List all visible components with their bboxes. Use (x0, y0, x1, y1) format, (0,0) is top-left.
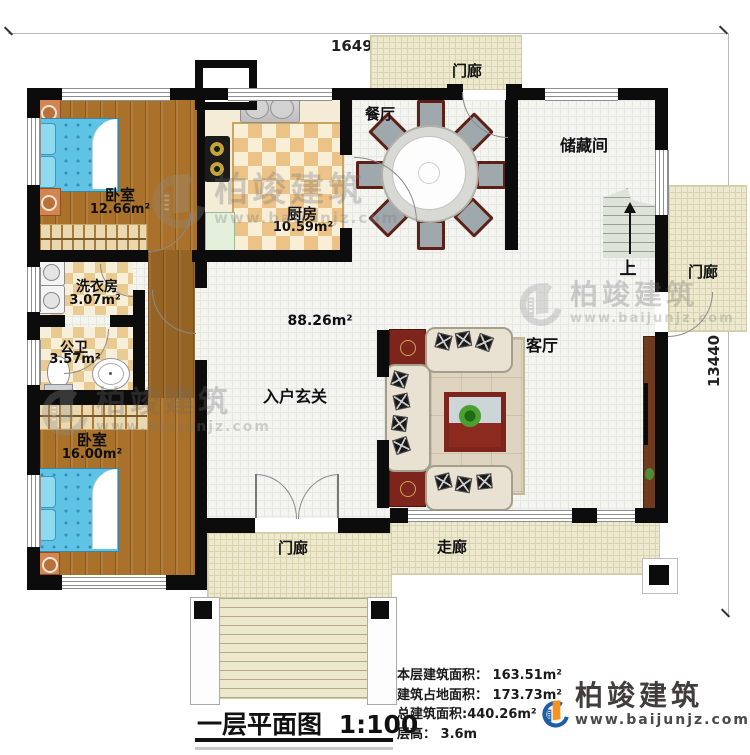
stairs-arrow-head (624, 202, 636, 213)
stairs-up-label: 上 (610, 254, 646, 279)
watermark-brand-text: 柏竣建筑 (570, 280, 735, 311)
wall (170, 88, 228, 100)
wall-stub (506, 84, 522, 100)
window (597, 510, 635, 522)
wall (655, 332, 668, 518)
end-table (389, 329, 426, 366)
wall (338, 518, 390, 533)
watermark-url-text: www.baijunjz.com (214, 209, 399, 227)
info-footprint-area: 建筑占地面积： 173.73m² (397, 686, 562, 706)
entry-steps (218, 597, 370, 699)
title-underline-shadow (195, 747, 393, 750)
dining-chair (476, 161, 506, 189)
sofa-pillow (455, 331, 472, 348)
wall (572, 508, 597, 523)
entry-door-panel (255, 474, 257, 518)
wall (377, 440, 389, 508)
end-table (389, 470, 426, 507)
dimension-tick (4, 26, 13, 35)
brand-logo: 柏竣建筑 www.baijunjz.com (540, 680, 750, 750)
wardrobe (38, 224, 147, 252)
room-label-dining: 餐厅 (350, 103, 410, 124)
room-label-porch-bottom: 门廊 (258, 537, 328, 558)
dimension-line-top (8, 33, 725, 34)
room-label-corridor: 走廊 (417, 536, 487, 557)
room-area-laundry: 3.07m² (50, 293, 140, 308)
watermark: 柏竣建筑 www.baijunjz.com (38, 386, 271, 442)
watermark-url-text: www.baijunjz.com (570, 311, 735, 326)
sofa-pillow (476, 473, 492, 489)
window (62, 88, 170, 101)
window (27, 267, 41, 312)
wall (27, 250, 148, 262)
watermark: 柏竣建筑 www.baijunjz.com (516, 280, 735, 332)
stairs-arrow-shaft (629, 212, 631, 254)
watermark-brand-text: 柏竣建筑 (96, 386, 271, 419)
room-area-bedroom2: 16.00m² (46, 447, 138, 462)
watermark-url-text: www.baijunjz.com (96, 419, 271, 435)
dimension-right-value: 13440 (705, 331, 723, 391)
room-label-storage: 储藏间 (544, 132, 624, 156)
watermark-logo-icon (148, 172, 206, 234)
wall (390, 508, 408, 523)
wall (205, 250, 350, 262)
room-label-living: 客厅 (512, 332, 572, 356)
pillar-column (371, 601, 389, 619)
wall (27, 88, 40, 118)
watermark-logo-icon (38, 386, 88, 442)
wall (166, 575, 207, 590)
wall (522, 88, 545, 100)
window (27, 475, 41, 547)
bed-sheet (92, 469, 117, 549)
wall (27, 315, 65, 327)
plan-title-text: 一层平面图 (197, 710, 322, 739)
brand-logo-icon (540, 680, 569, 750)
room-label-porch-top: 门廊 (432, 60, 502, 81)
pillar-column (194, 601, 212, 619)
sofa-pillow (393, 393, 411, 411)
tv (644, 383, 648, 445)
brand-name: 柏竣建筑 (575, 680, 750, 712)
watermark-brand-text: 柏竣建筑 (214, 172, 399, 209)
window (655, 150, 669, 215)
window (27, 118, 41, 185)
window (408, 510, 572, 522)
room-area-bathroom: 3.57m² (35, 352, 115, 367)
wall (655, 88, 668, 150)
wall (195, 250, 207, 288)
wall (635, 508, 668, 523)
brand-url: www.baijunjz.com (575, 712, 750, 728)
plan-title: 一层平面图 1:100 (197, 705, 418, 741)
cabinet-plant (645, 468, 654, 480)
info-floor-area: 本层建筑面积： 163.51m² (397, 666, 562, 686)
sink-drain (109, 372, 112, 375)
window (228, 88, 332, 101)
wall-stub (447, 84, 463, 100)
foyer-area-label: 88.26m² (275, 313, 365, 329)
entry-door-panel (337, 474, 339, 518)
wall (110, 315, 145, 327)
wall (377, 330, 389, 377)
dining-chair (417, 220, 445, 250)
info-total-area: 总建筑面积:440.26m² (397, 705, 562, 725)
watermark-logo-icon (516, 280, 562, 332)
title-underline (195, 738, 393, 742)
dining-table-hub (418, 162, 440, 184)
sofa-pillow (391, 415, 408, 432)
burner (210, 142, 224, 156)
floor-plan: 16490 13440 (0, 0, 750, 755)
wall (27, 575, 62, 590)
info-floor-height: 层高： 3.6m (397, 725, 562, 745)
building-info: 本层建筑面积： 163.51m² 建筑占地面积： 173.73m² 总建筑面积:… (397, 666, 562, 744)
wall (332, 88, 462, 100)
window (62, 577, 166, 589)
sofa-pillow (455, 476, 472, 493)
nightstand (37, 552, 60, 575)
bed-sheet (92, 119, 117, 189)
potted-plant (457, 403, 483, 429)
watermark: 柏竣建筑 www.baijunjz.com (148, 172, 399, 234)
corridor-column (649, 565, 669, 585)
window (545, 88, 618, 101)
